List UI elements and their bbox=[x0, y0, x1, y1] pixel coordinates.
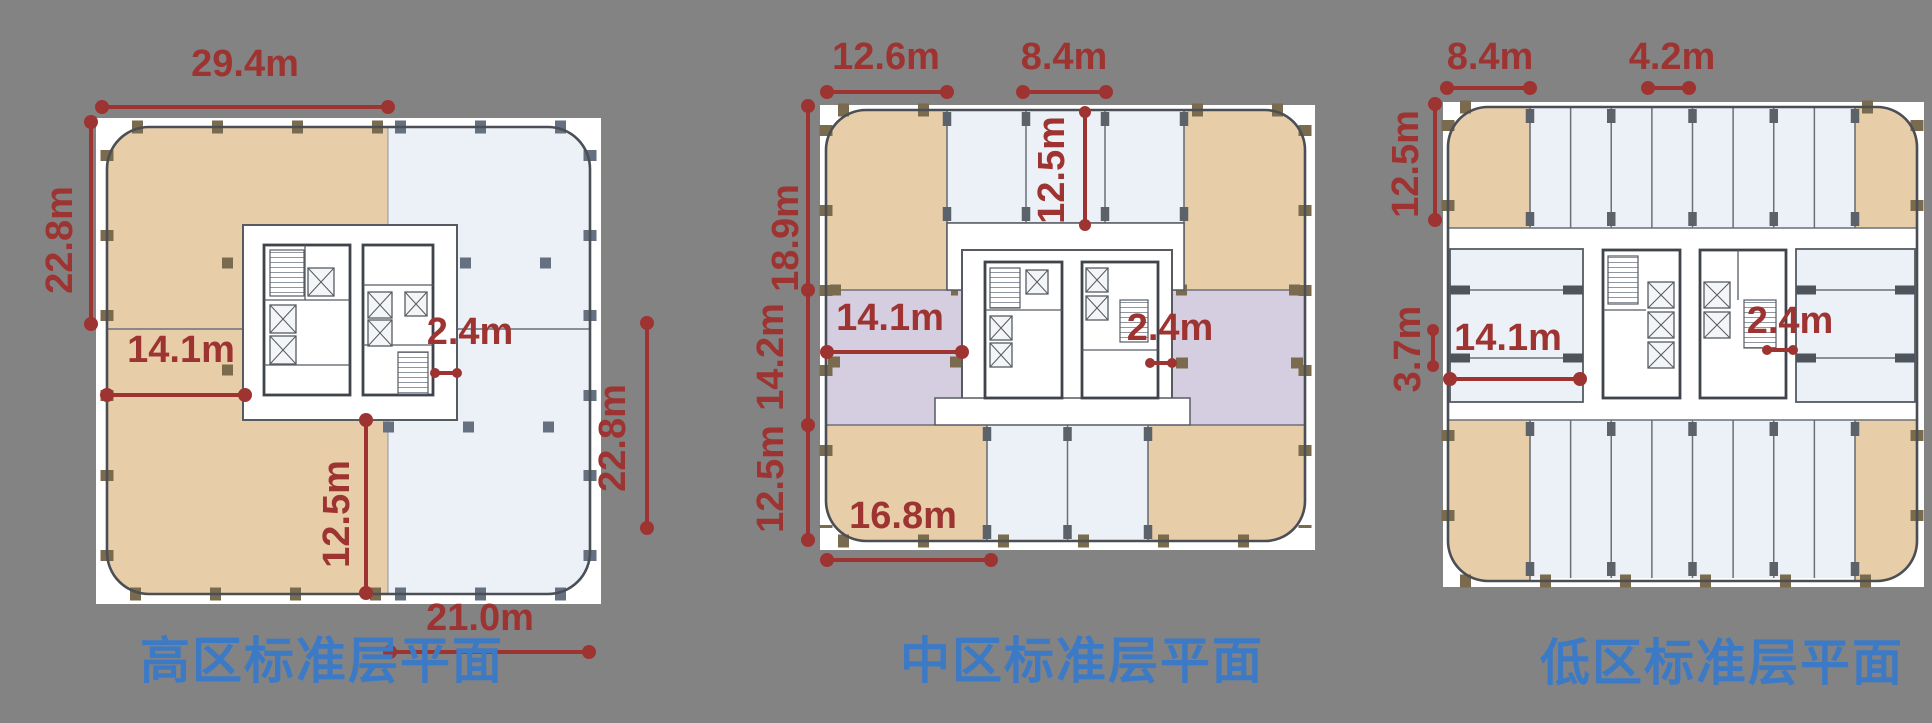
plan-title-high-zone: 高区标准层平面 bbox=[140, 636, 504, 686]
dim-label-right-height: 22.8m bbox=[594, 384, 632, 492]
dim-label-bottom-width: 21.0m bbox=[426, 599, 534, 637]
stair-icon bbox=[270, 250, 304, 296]
plans-drawing bbox=[0, 0, 1932, 723]
dim-label-left-height: 22.8m bbox=[41, 186, 79, 294]
dim-label-upper-left-height: 18.9m bbox=[767, 184, 805, 292]
dim-label-bay-width: 4.2m bbox=[1629, 38, 1716, 76]
dim-label-wing-width: 14.1m bbox=[836, 299, 944, 337]
stair-icon bbox=[1608, 256, 1638, 304]
floor-plan-diagram: 29.4m 22.8m 14.1m 2.4m 12.5m 22.8m 21.0m… bbox=[0, 0, 1932, 723]
dim-label-wing-width: 14.1m bbox=[1454, 319, 1562, 357]
dim-label-lower-left-height: 12.5m bbox=[752, 425, 790, 533]
plan-title-mid-zone: 中区标准层平面 bbox=[900, 636, 1264, 686]
dim-label-lower-depth: 12.5m bbox=[318, 460, 356, 568]
dim-label-top-left-width: 8.4m bbox=[1447, 38, 1534, 76]
dim-label-core-width: 2.4m bbox=[1127, 309, 1214, 347]
dim-label-top-width: 29.4m bbox=[191, 45, 299, 83]
stair-icon bbox=[990, 268, 1020, 308]
dim-label-top-bay-width: 8.4m bbox=[1021, 38, 1108, 76]
dim-label-mid-left-height: 14.2m bbox=[752, 303, 790, 411]
dim-label-left-height: 12.5m bbox=[1387, 110, 1425, 218]
plan-title-low-zone: 低区标准层平面 bbox=[1540, 638, 1904, 688]
dim-label-bottom-width: 16.8m bbox=[849, 497, 957, 535]
dim-label-top-left-width: 12.6m bbox=[832, 38, 940, 76]
dim-label-bay-depth: 12.5m bbox=[1033, 116, 1071, 224]
plan1-core bbox=[243, 225, 457, 420]
dim-label-room-depth: 3.7m bbox=[1389, 306, 1427, 393]
plan-high-zone bbox=[84, 100, 654, 659]
elevator-icon bbox=[1648, 282, 1674, 368]
dim-label-wing-width: 14.1m bbox=[127, 331, 235, 369]
stair-icon bbox=[398, 352, 428, 394]
dim-label-core-width: 2.4m bbox=[427, 313, 514, 351]
dim-label-core-width: 2.4m bbox=[1747, 302, 1834, 340]
